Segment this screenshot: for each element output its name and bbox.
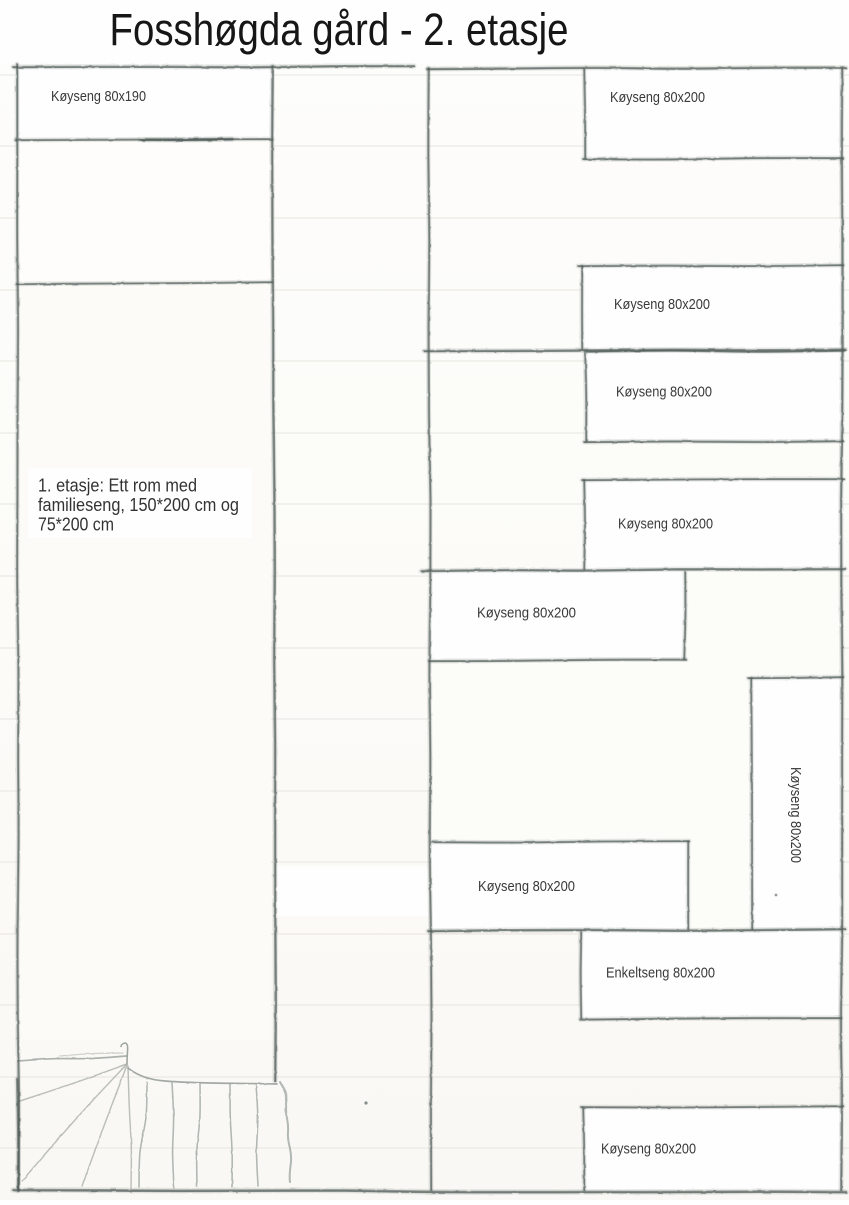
svg-text:Køyseng 80x200: Køyseng 80x200	[601, 1141, 696, 1158]
svg-text:Køyseng 80x200: Køyseng 80x200	[616, 384, 712, 401]
svg-text:Enkeltseng 80x200: Enkeltseng 80x200	[606, 965, 715, 982]
svg-text:Fosshøgda gård - 2. etasje: Fosshøgda gård - 2. etasje	[110, 4, 569, 55]
svg-text:Køyseng 80x200: Køyseng 80x200	[478, 878, 575, 895]
svg-text:Køyseng 80x200: Køyseng 80x200	[614, 296, 710, 313]
svg-text:Køyseng 80x200: Køyseng 80x200	[787, 767, 804, 863]
svg-text:Køyseng 80x200: Køyseng 80x200	[610, 89, 705, 106]
svg-text:Køyseng 80x200: Køyseng 80x200	[477, 605, 576, 622]
svg-text:1. etasje: Ett rom med: 1. etasje: Ett rom med	[38, 476, 197, 496]
svg-text:75*200 cm: 75*200 cm	[38, 515, 114, 535]
svg-text:Køyseng 80x190: Køyseng 80x190	[51, 88, 146, 105]
svg-text:Køyseng 80x200: Køyseng 80x200	[618, 516, 713, 533]
svg-text:familieseng, 150*200 cm og: familieseng, 150*200 cm og	[38, 495, 239, 515]
